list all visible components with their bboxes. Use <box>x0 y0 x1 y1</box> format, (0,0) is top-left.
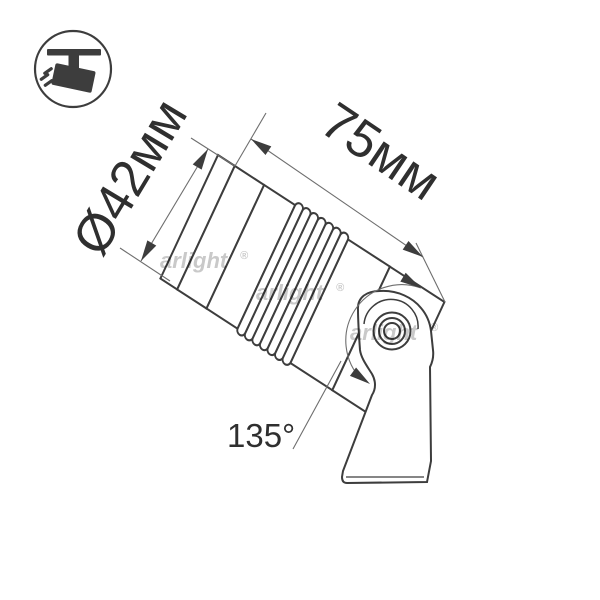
track-light-logo-icon <box>35 31 111 107</box>
dimension-arrow <box>403 241 426 261</box>
angle-label: 135° <box>227 417 295 454</box>
svg-text:arlight: arlight <box>160 248 229 273</box>
dimension-arrow <box>137 240 157 263</box>
dimension-drawing: arlight ® arlight ® arlight ® Ø42мм 75мм <box>0 0 600 600</box>
light-rays-icon <box>39 67 54 88</box>
svg-text:®: ® <box>240 250 249 262</box>
svg-text:®: ® <box>430 322 439 334</box>
svg-text:arlight: arlight <box>350 320 419 345</box>
track-bar <box>47 49 101 56</box>
drawing-canvas: arlight ® arlight ® arlight ® Ø42мм 75мм <box>0 0 600 600</box>
svg-text:®: ® <box>336 282 345 294</box>
extension-line <box>235 113 266 166</box>
svg-text:arlight: arlight <box>256 280 325 305</box>
spotlight-head <box>51 63 96 93</box>
